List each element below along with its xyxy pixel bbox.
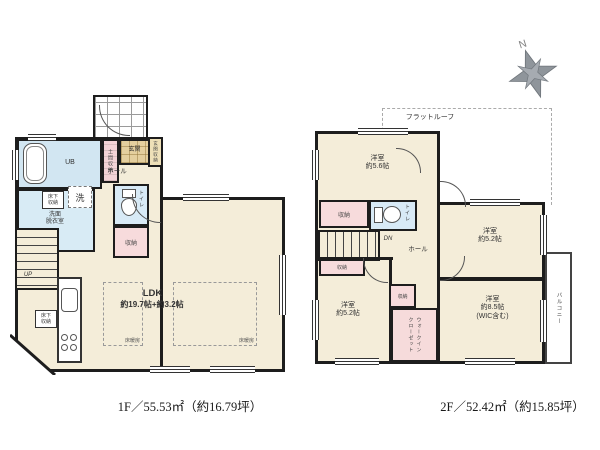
hall-2f-label: ホール <box>398 246 438 254</box>
walk-in-closet: ウォークイン クローゼット <box>391 308 438 362</box>
underfloor-storage-1-label: 床下 収納 <box>48 194 58 206</box>
storage-2f-mid-label: 収納 <box>397 293 407 300</box>
washer-label: 洗 <box>75 191 84 204</box>
stairs-1f <box>15 228 59 290</box>
window-52l-bottom <box>335 358 379 365</box>
window-ldk-top <box>183 194 229 201</box>
flat-roof-label: フラットルーフ <box>400 114 460 122</box>
stairs-down-label: DN <box>378 236 398 243</box>
floor-heating-2-label: 床暖房 <box>238 339 255 345</box>
stove-burner-1 <box>61 334 68 341</box>
stove-burner-4 <box>70 344 77 351</box>
compass-diagonal-star <box>511 51 556 96</box>
balcony: バルコニー <box>545 252 572 364</box>
floor-heating-1-label: 床暖房 <box>124 339 141 345</box>
storage-2f-mid: 収納 <box>389 284 416 308</box>
bathtub-inner <box>26 146 44 181</box>
ldk-name-label: LDK <box>100 288 205 299</box>
underfloor-storage-1: 床下 収納 <box>42 191 64 209</box>
toilet-2f-bowl <box>383 206 401 223</box>
underfloor-storage-2-label: 床下 収納 <box>41 313 51 325</box>
compass-rose: N <box>498 30 568 114</box>
window-56-left <box>312 150 319 180</box>
toilet-2f-tank <box>374 207 383 223</box>
window-52r-top <box>470 199 520 206</box>
storage-2f-left-label: 収納 <box>337 264 347 271</box>
stairs-up-label: UP <box>18 272 38 279</box>
chamfer-corner <box>10 329 60 375</box>
window-ldk-bottom-2 <box>210 366 255 373</box>
bath-label: UB <box>55 159 85 167</box>
window-85-bottom <box>465 358 515 365</box>
window-56-top <box>358 128 408 135</box>
window-bath-top <box>28 134 56 141</box>
balcony-label: バルコニー <box>555 292 563 325</box>
window-bath-left <box>12 150 19 180</box>
entrance-label: 玄関 <box>119 147 150 154</box>
entrance-storage-label: 玄関収納 <box>153 141 159 163</box>
bedroom-85-label: 洋室 約8.5帖 (WIC含む) <box>450 296 535 321</box>
balcony-door-window <box>540 300 547 342</box>
walk-in-closet-label: ウォークイン クローゼット <box>407 317 423 353</box>
kitchen-sink <box>61 288 78 312</box>
washer-space: 洗 <box>68 186 92 208</box>
floorplan-canvas: UB 土間収納 玄関 玄関収納 ホール トイレ 収納 洗面 脱衣室 洗 床下 収… <box>0 0 600 450</box>
ldk-size-label: 約19.7帖+約3.2帖 <box>92 300 212 310</box>
doma-storage: 土間収納 <box>102 139 119 183</box>
window-52r-right <box>540 215 547 255</box>
washroom-label: 洗面 脱衣室 <box>35 212 75 226</box>
hall-1f-label: ホール <box>96 168 138 176</box>
storage-2f-top-label: 収納 <box>338 210 350 219</box>
entrance-storage: 玄関収納 <box>148 137 163 167</box>
storage-1f-label: 収納 <box>125 238 137 247</box>
underfloor-storage-2: 床下 収納 <box>35 310 57 328</box>
storage-2f-top: 収納 <box>319 200 369 228</box>
stove-burner-3 <box>61 344 68 351</box>
storage-2f-left: 収納 <box>319 259 365 276</box>
window-52l-left <box>312 300 319 340</box>
window-ldk-right <box>279 255 286 315</box>
window-ldk-bottom-1 <box>150 366 190 373</box>
compass-north-letter: N <box>517 38 528 52</box>
storage-1f: 収納 <box>113 226 149 258</box>
bedroom-52-right-label: 洋室 約5.2帖 <box>450 228 530 245</box>
toilet-2f-label: トイレ <box>404 204 410 222</box>
floor2-right-block <box>437 202 545 364</box>
floor2-caption: 2F／52.42㎡（約15.85坪） <box>425 396 600 415</box>
stove-burner-2 <box>70 334 77 341</box>
bedroom-52-left-label: 洋室 約5.2帖 <box>308 302 388 319</box>
